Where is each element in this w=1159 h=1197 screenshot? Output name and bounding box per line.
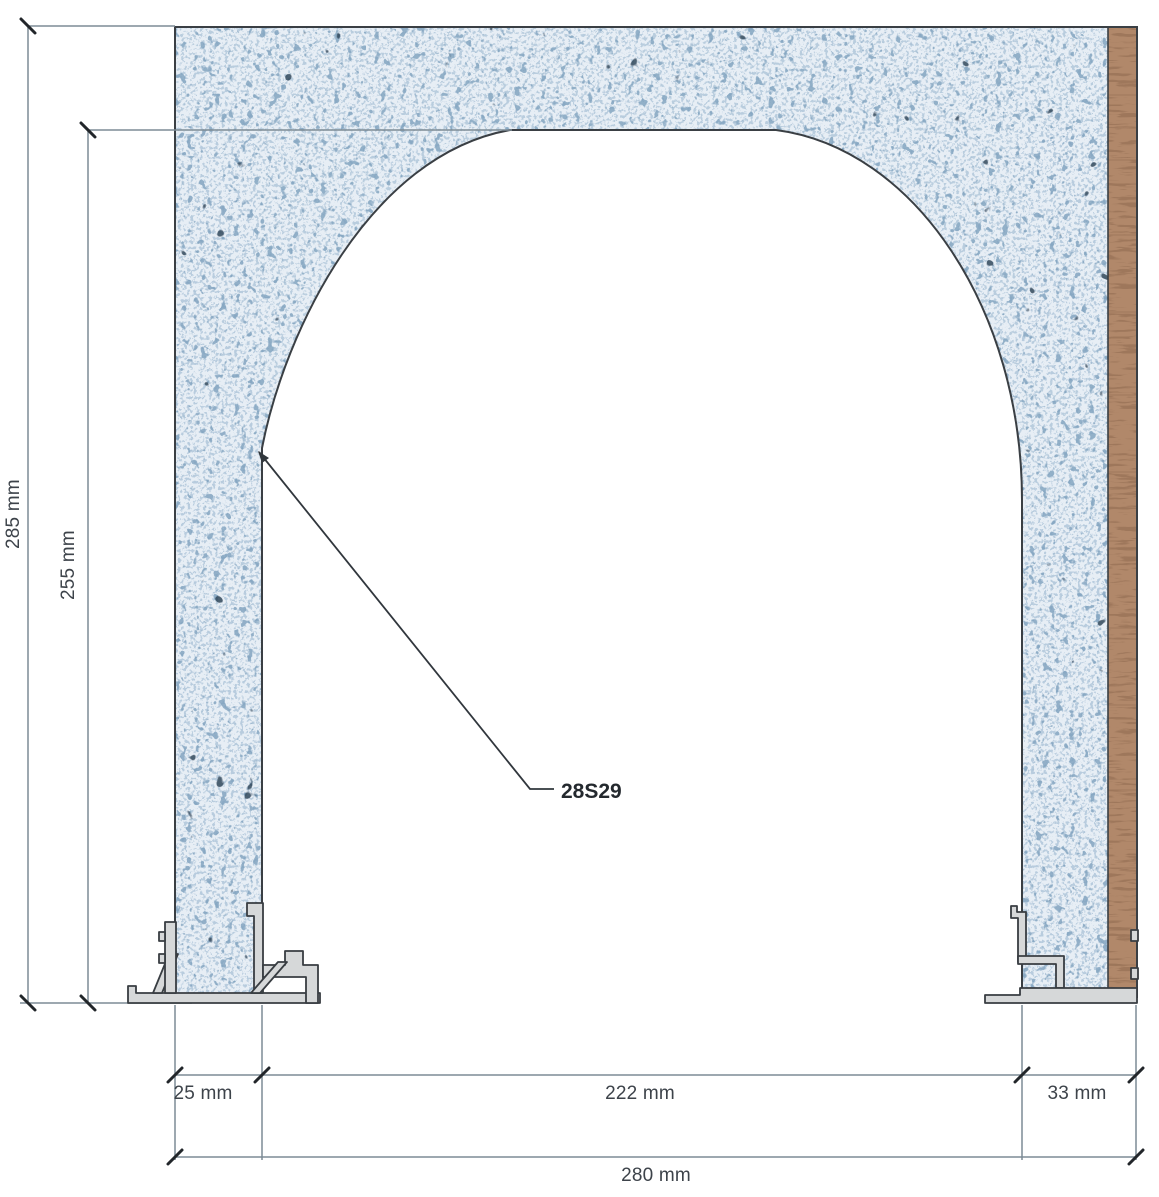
wood-strip: [1108, 27, 1137, 995]
left-profile-nub: [159, 932, 165, 941]
dim-overall-height-label: 285 mm: [3, 479, 25, 549]
dim-overall-width-label: 280 mm: [606, 1165, 706, 1187]
dim-opening-height-label: 255 mm: [58, 530, 80, 600]
leader-line: [258, 451, 554, 789]
arch-section-drawing: [0, 0, 1159, 1197]
right-profile-nub: [1131, 968, 1138, 979]
right-profile-base: [985, 988, 1137, 1003]
wall-section: [170, 22, 1142, 1002]
part-code-label: 28S29: [561, 780, 622, 804]
wood-grain-texture: [1108, 27, 1137, 995]
dim-left-jamb-label: 25 mm: [153, 1083, 253, 1105]
wall-speckle-dark: [170, 22, 1142, 1002]
right-profile-nub: [1131, 930, 1138, 941]
dim-right-jamb-label: 33 mm: [1027, 1083, 1127, 1105]
left-profile-nub: [159, 954, 165, 963]
dim-opening-width-label: 222 mm: [590, 1083, 690, 1105]
technical-drawing-canvas: 285 mm 255 mm 25 mm 222 mm 33 mm 280 mm …: [0, 0, 1159, 1197]
left-profile-plate: [165, 922, 176, 993]
right-profile-bar: [1011, 906, 1026, 962]
